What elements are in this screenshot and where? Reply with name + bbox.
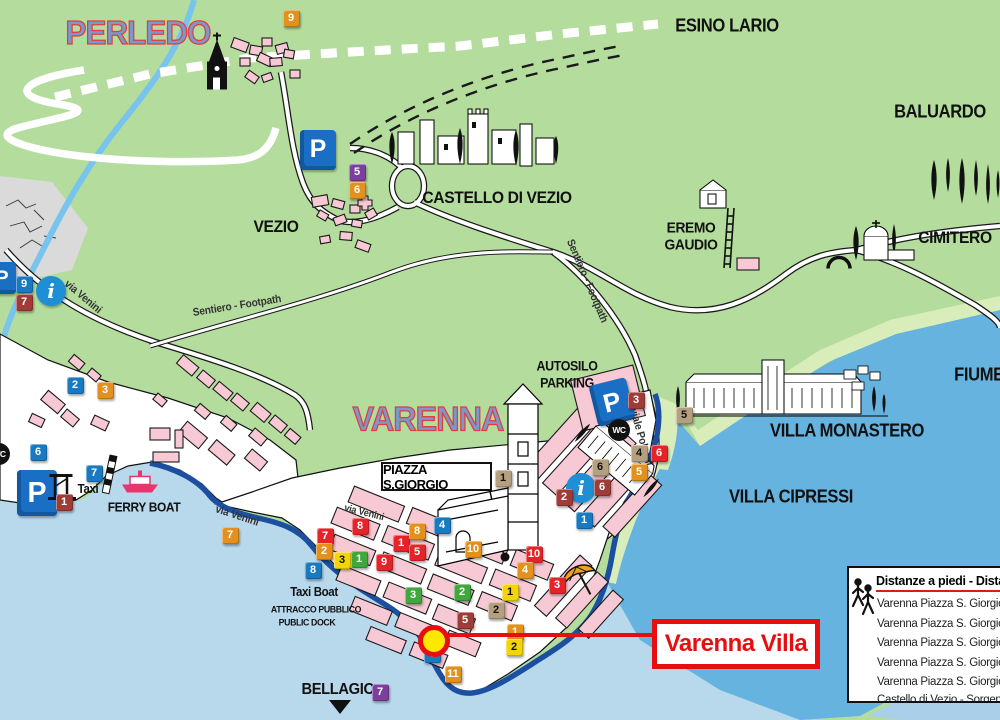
place-label-vezio: VEZIO [253,217,298,237]
map-marker-maroon-1: 1 [56,494,73,511]
map-marker-tan-5: 5 [676,407,693,424]
map-marker-purple-7: 7 [372,684,389,701]
parking-icon: P [0,262,16,294]
map-marker-orange-4: 4 [517,562,534,579]
place-label-baluardo: BALUARDO [894,102,986,123]
map-marker-orange-7: 7 [222,527,239,544]
footpath [150,252,553,346]
map-marker-green-2: 2 [454,584,471,601]
place-label-cimitero: CIMITERO [918,228,992,248]
map-marker-blue-4: 4 [434,517,451,534]
place-label-fiume: FIUME [954,365,1000,386]
place-label-public-dock: PUBLIC DOCK [279,618,336,629]
varenna-villa-location-icon [418,625,450,657]
piazza-s-giorgio-label: PIAZZA S.GIORGIO [381,462,492,491]
place-label-esino-lario: ESINO LARIO [675,16,779,37]
place-label-ferry-boat: FERRY BOAT [108,500,181,515]
varenna-villa-label: Varenna Villa [665,630,807,658]
baluardo-trees-sketch [931,158,999,204]
place-label-castello-di-vezio: CASTELLO DI VEZIO [422,188,571,208]
map-marker-maroon-7: 7 [16,294,33,311]
perledo-church-icon [200,32,234,97]
map-marker-orange-11: 11 [445,666,462,683]
wc-icon: WC [608,419,630,441]
legend-row-4: Varenna Piazza S. Giorgio [877,657,1000,669]
place-label-autosilo: AUTOSILO [536,359,597,374]
map-marker-red-5: 5 [409,544,426,561]
piazza-s-giorgio-text: PIAZZA S.GIORGIO [383,462,490,492]
map-marker-tan-6: 6 [592,459,609,476]
legend-row-5: Varenna Piazza S. Giorgio [877,676,1000,688]
legend-row-6: Castello di Vezio - Sorgen [877,694,1000,704]
map-marker-red-6: 6 [651,445,668,462]
varenna-tourist-map: PERLEDOVARENNAESINO LARIOBALUARDOCASTELL… [0,0,1000,720]
map-marker-maroon-5: 5 [457,612,474,629]
wc-icon: WC [0,443,10,465]
map-marker-yellow-3: 3 [334,552,351,569]
map-marker-maroon-6: 6 [594,479,611,496]
map-marker-blue-6: 6 [30,444,47,461]
place-label-villa-monastero: VILLA MONASTERO [770,421,924,442]
parking-icon: P [300,130,336,170]
map-marker-yellow-1: 1 [502,584,519,601]
place-label-taxi-boat: Taxi Boat [290,585,338,599]
walking-people-icon [851,576,875,620]
map-marker-red-9: 9 [376,554,393,571]
map-marker-red-3: 3 [549,577,566,594]
map-title-perledo: PERLEDO [66,14,211,52]
map-marker-orange-3: 3 [97,382,114,399]
legend-title-rule [876,590,1000,592]
place-label-attracco-pubblico: ATTRACCO PUBBLICO [271,605,361,616]
place-label-eremo: EREMO [667,220,716,237]
map-marker-green-3: 3 [405,587,422,604]
varenna-villa-callout: Varenna Villa [652,619,820,669]
ferry-boat-icon [120,470,160,501]
map-marker-maroon-3: 3 [628,392,645,409]
map-marker-orange-8: 8 [409,523,426,540]
map-marker-blue-7: 7 [86,465,103,482]
legend-row-2: Varenna Piazza S. Giorgio [877,618,1000,630]
map-marker-orange-6: 6 [349,182,366,199]
place-label-parking: PARKING [540,376,594,391]
bridge-arch-icon [825,253,853,276]
bellagio-arrow-icon [329,700,351,714]
place-label-taxi: Taxi [78,482,99,496]
place-label-villa-cipressi: VILLA CIPRESSI [729,487,853,508]
map-marker-tan-1: 1 [495,470,512,487]
piazza-point-icon [500,549,510,567]
place-label-gaudio: GAUDIO [664,237,717,254]
map-marker-red-10: 10 [526,546,543,563]
callout-line [440,633,656,637]
map-marker-red-8: 8 [352,518,369,535]
place-label-bellagio: BELLAGIO [301,681,374,699]
distances-legend: Distanze a piedi - Dista Varenna Piazza … [847,566,1000,703]
map-title-varenna: VARENNA [353,401,504,440]
map-marker-orange-1: 1 [507,624,524,641]
map-marker-orange-5: 5 [631,464,648,481]
legend-title: Distanze a piedi - Dista [876,574,1000,588]
map-marker-green-1: 1 [351,551,368,568]
map-marker-orange-10: 10 [465,541,482,558]
beach-umbrella-icon [560,563,600,606]
map-marker-yellow-2: 2 [506,639,523,656]
map-marker-blue-8: 8 [305,562,322,579]
map-marker-blue-2: 2 [67,377,84,394]
map-marker-tan-2: 2 [488,602,505,619]
map-marker-orange-2: 2 [316,543,333,560]
mooring-pole-icon [102,454,118,501]
map-marker-maroon-2: 2 [556,489,573,506]
footpath-casing [150,252,553,346]
hairpin-road [7,70,276,162]
map-marker-purple-5: 5 [349,164,366,181]
map-marker-blue-1: 1 [576,512,593,529]
map-marker-blue-9: 9 [16,276,33,293]
map-marker-tan-4: 4 [631,445,648,462]
map-marker-red-7: 7 [317,528,334,545]
legend-row-3: Varenna Piazza S. Giorgio [877,637,1000,649]
info-icon: i [36,276,66,306]
legend-row-1: Varenna Piazza S. Giorgio [877,598,1000,610]
map-marker-red-1: 1 [393,535,410,552]
map-marker-orange-9: 9 [283,10,300,27]
